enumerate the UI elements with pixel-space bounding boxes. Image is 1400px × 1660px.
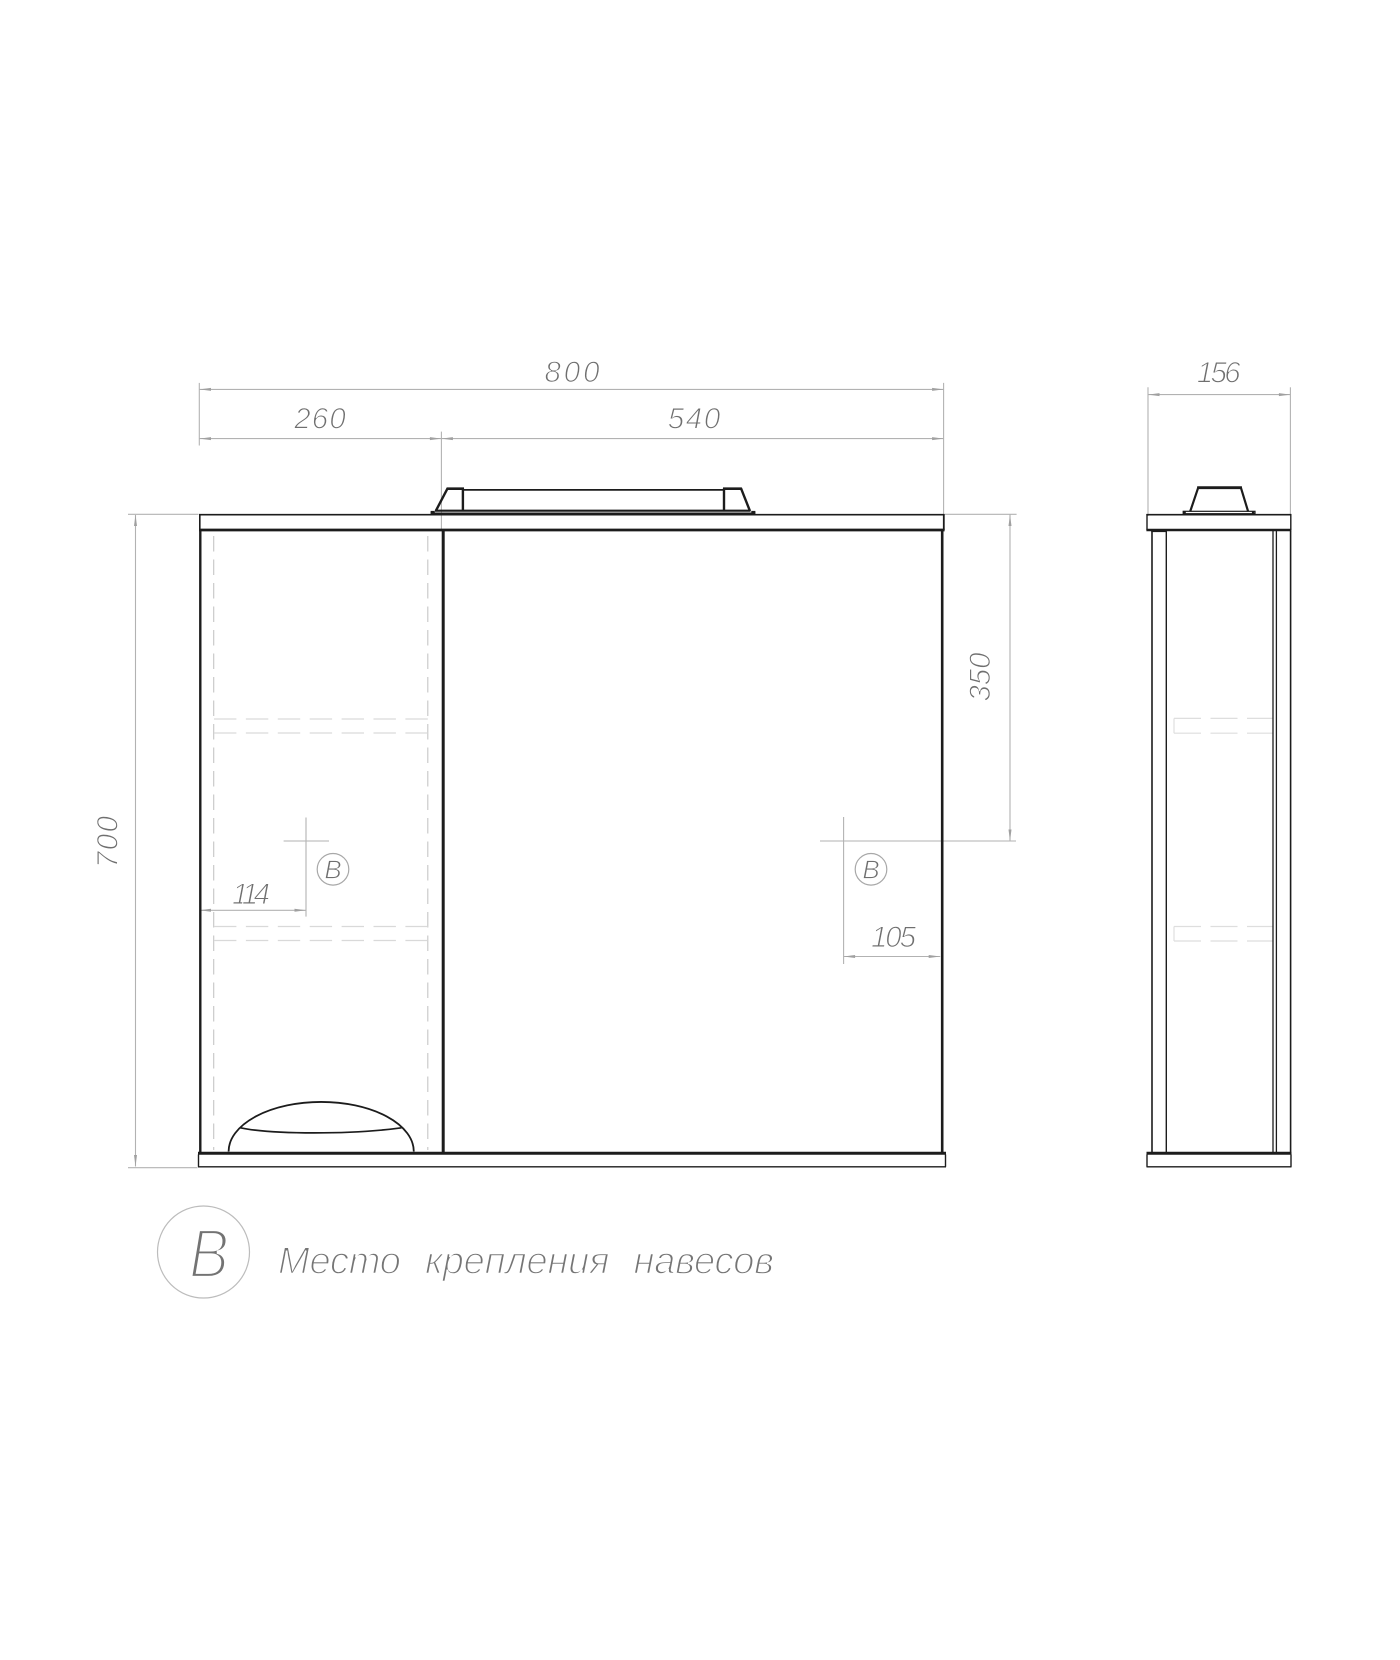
svg-text:540: 540 — [668, 403, 721, 436]
svg-text:156: 156 — [1197, 357, 1242, 390]
svg-text:800: 800 — [545, 356, 601, 389]
svg-text:Место крепления навесов: Место крепления навесов — [278, 1241, 777, 1283]
svg-text:B: B — [324, 855, 341, 885]
svg-text:B: B — [862, 855, 879, 885]
svg-text:260: 260 — [293, 403, 346, 436]
svg-text:350: 350 — [964, 652, 997, 702]
svg-text:105: 105 — [871, 921, 917, 954]
svg-text:700: 700 — [92, 815, 125, 868]
svg-text:114: 114 — [232, 878, 270, 911]
svg-text:B: B — [189, 1215, 229, 1293]
